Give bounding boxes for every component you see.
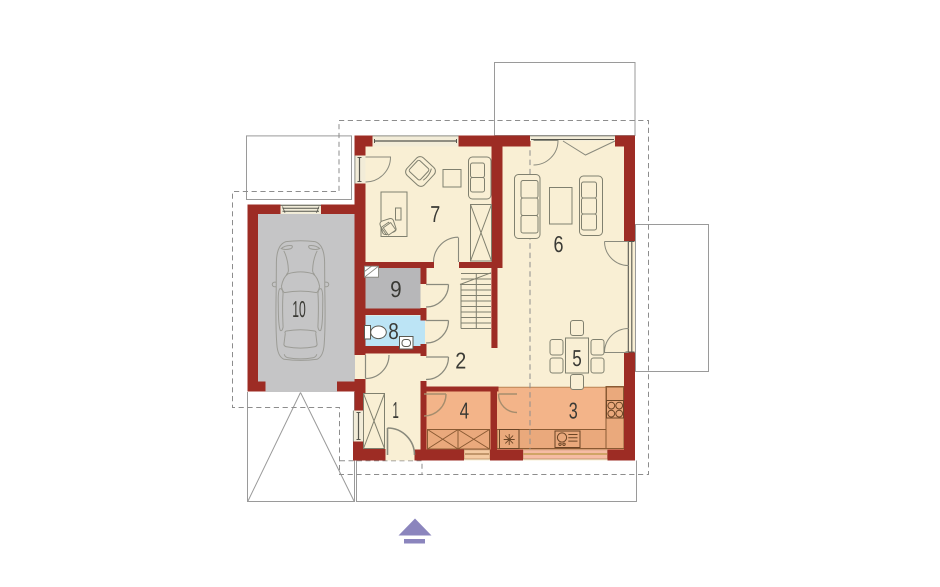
svg-text:5: 5 [572, 345, 582, 371]
svg-text:4: 4 [460, 397, 470, 423]
svg-text:2: 2 [455, 347, 466, 373]
svg-text:8: 8 [388, 318, 399, 344]
svg-text:10: 10 [292, 296, 306, 322]
svg-text:3: 3 [569, 397, 578, 423]
svg-text:7: 7 [430, 201, 440, 227]
svg-text:1: 1 [392, 397, 399, 423]
svg-text:6: 6 [554, 231, 564, 257]
svg-text:9: 9 [390, 276, 402, 302]
